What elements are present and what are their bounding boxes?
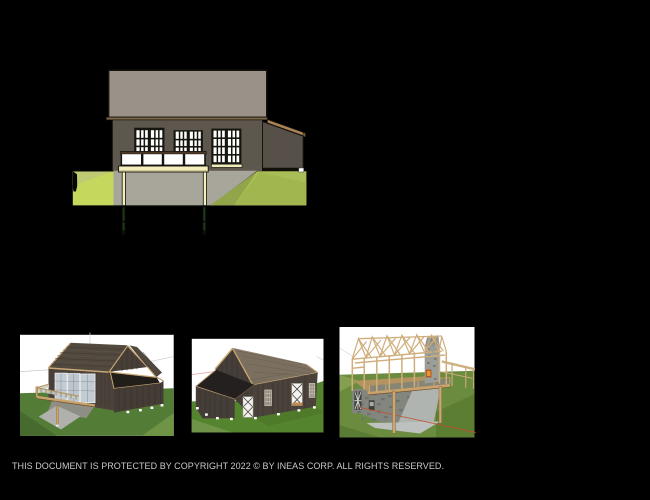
svg-text:THIS DOCUMENT IS PROTECTED BY: THIS DOCUMENT IS PROTECTED BY COPYRIGHT … [12,461,444,471]
